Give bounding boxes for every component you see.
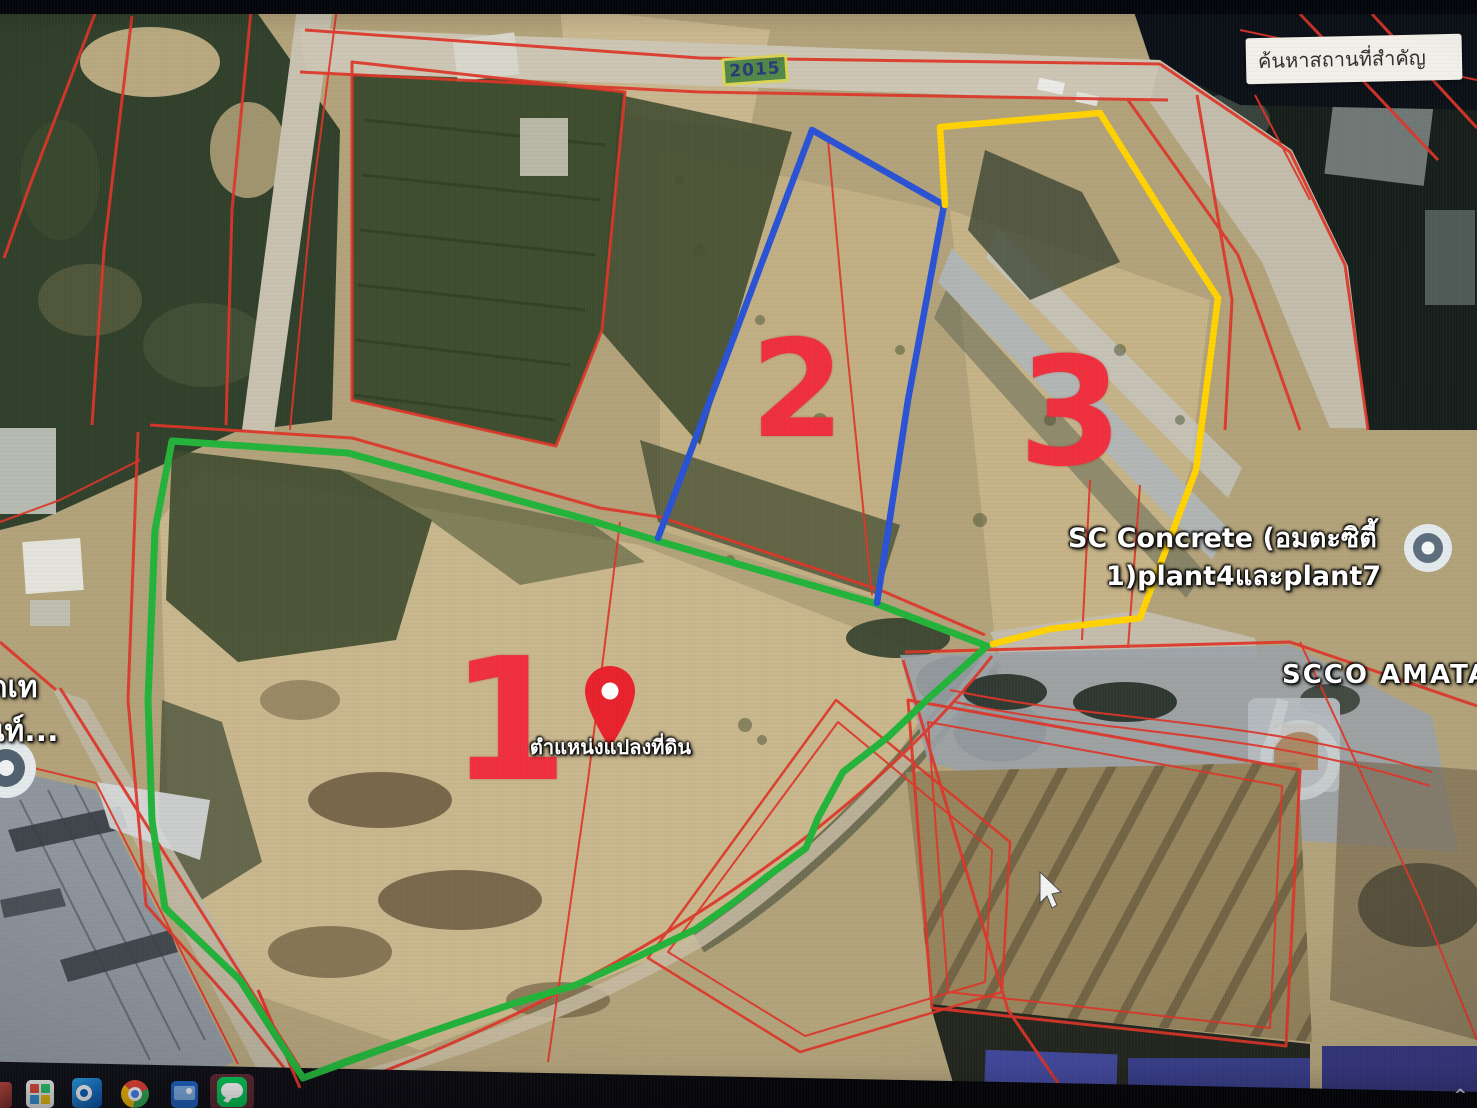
screen-bezel-top xyxy=(0,0,1477,14)
route-2015-badge: 2015 xyxy=(721,54,789,87)
route-number: 2015 xyxy=(729,58,782,82)
app-icon-line[interactable] xyxy=(210,1074,254,1108)
sc-concrete-label-line2: 1)plant4และplant7 xyxy=(1106,554,1381,597)
parcel-1-number: 1 xyxy=(450,636,550,806)
search-input-text: ค้นหาสถานที่สำคัญ xyxy=(1258,42,1426,78)
parcel-3-number: 3 xyxy=(1018,338,1123,488)
left-edge-label-line1: ดเท xyxy=(0,664,38,711)
left-edge-label-line2: นท์... xyxy=(0,708,58,755)
taskbar-chevron-icon[interactable]: ^ xyxy=(1454,1086,1467,1104)
app-icon-chrome[interactable] xyxy=(121,1080,149,1108)
scco-amata-label: SCCO AMATAC xyxy=(1282,660,1477,690)
search-input[interactable]: ค้นหาสถานที่สำคัญ xyxy=(1246,34,1463,85)
app-icon-partial[interactable] xyxy=(0,1082,12,1108)
app-icon-photos[interactable] xyxy=(171,1081,198,1108)
photographed-screen: ค้นหาสถานที่สำคัญ 2015 1 2 3 ตำแหน่งแปลง… xyxy=(0,0,1477,1108)
sc-concrete-label-line1: SC Concrete (อมตะซิตี้ xyxy=(1068,516,1377,559)
app-icon-outlook[interactable] xyxy=(72,1078,102,1108)
poi-marker-right-icon[interactable] xyxy=(1404,524,1452,572)
pin-label: ตำแหน่งแปลงที่ดิน xyxy=(523,731,698,763)
app-icon-store[interactable] xyxy=(26,1080,54,1108)
parcel-2-number: 2 xyxy=(750,322,845,457)
